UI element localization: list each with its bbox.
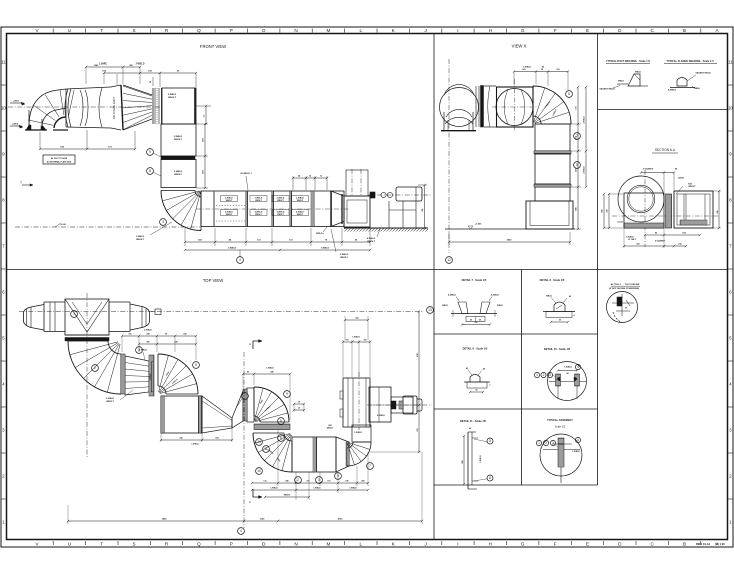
svg-text:P: P	[230, 28, 233, 33]
svg-text:1-WELD: 1-WELD	[572, 451, 580, 453]
svg-text:4: 4	[577, 438, 579, 442]
svg-text:5: 5	[576, 163, 578, 167]
svg-text:DETAIL 7 - Scale 1/5: DETAIL 7 - Scale 1/5	[462, 278, 487, 282]
svg-text:J: J	[424, 541, 426, 546]
svg-text:90: 90	[247, 372, 249, 374]
svg-text:10: 10	[257, 469, 261, 473]
svg-text:E: E	[586, 28, 589, 33]
svg-text:3: 3	[138, 348, 140, 352]
svg-text:+1.005: +1.005	[475, 224, 483, 226]
svg-text:GASKET WELD: GASKET WELD	[599, 88, 615, 91]
svg-text:980: 980	[576, 207, 578, 210]
svg-text:4: 4	[577, 365, 579, 369]
svg-text:640: 640	[356, 317, 359, 320]
svg-text:2-WELD: 2-WELD	[584, 116, 586, 124]
svg-text:WBOLT: WBOLT	[168, 97, 177, 99]
svg-text:840: 840	[270, 371, 273, 374]
svg-text:1-WELD: 1-WELD	[270, 488, 278, 490]
svg-text:WBOLT: WBOLT	[255, 200, 262, 202]
svg-text:750: 750	[417, 428, 419, 431]
svg-text:4: 4	[240, 529, 242, 533]
svg-text:1: 1	[538, 441, 540, 445]
svg-text:1-WELD: 1-WELD	[149, 373, 151, 381]
svg-text:1-WELD: 1-WELD	[313, 488, 321, 490]
svg-text:O: O	[262, 28, 266, 33]
svg-text:E: E	[586, 541, 589, 546]
svg-text:790: 790	[345, 481, 348, 483]
svg-text:2-WELD: 2-WELD	[174, 171, 183, 173]
svg-text:H: H	[489, 541, 492, 546]
svg-text:WBOLT: WBOLT	[688, 186, 696, 188]
svg-text:940: 940	[461, 460, 464, 463]
svg-text:WELD: WELD	[546, 296, 552, 298]
svg-text:Scale 1/5: Scale 1/5	[555, 426, 566, 429]
svg-text:100: 100	[556, 69, 559, 71]
svg-text:11: 11	[264, 447, 268, 451]
svg-text:DETAIL 9 - Scale 1/5: DETAIL 9 - Scale 1/5	[463, 347, 488, 351]
svg-text:AL TELL 1 → TN 21 DELINE: AL TELL 1 → TN 21 DELINE	[611, 283, 640, 286]
svg-text:WELD: WELD	[635, 72, 642, 74]
svg-text:1-WELD: 1-WELD	[480, 455, 482, 463]
svg-text:1-WELD: 1-WELD	[354, 432, 362, 434]
svg-text:WBOLT: WBOLT	[297, 214, 304, 216]
svg-text:WBOLT: WBOLT	[136, 239, 145, 241]
svg-text:7462: 7462	[162, 517, 168, 520]
svg-text:1250/1: 1250/1	[678, 178, 685, 180]
svg-text:7: 7	[369, 464, 371, 468]
svg-text:WELD+: WELD+	[316, 233, 324, 235]
svg-text:4767: 4767	[416, 353, 419, 357]
svg-text:TOP VIEW: TOP VIEW	[203, 278, 223, 283]
svg-text:I: I	[457, 28, 458, 33]
svg-text:2-WELD: 2-WELD	[136, 64, 145, 66]
svg-text:1: 1	[73, 312, 75, 316]
svg-text:3: 3	[162, 220, 164, 224]
svg-text:360: 360	[146, 342, 149, 344]
svg-text:240: 240	[179, 437, 182, 440]
svg-text:50: 50	[479, 319, 481, 321]
svg-text:WBOLT: WBOLT	[367, 241, 376, 243]
svg-text:A-WELD: A-WELD	[668, 89, 677, 92]
svg-text:50: 50	[475, 390, 477, 392]
svg-text:T: T	[100, 541, 103, 546]
svg-text:G: G	[521, 541, 525, 546]
svg-text:O: O	[262, 541, 266, 546]
svg-text:WELD: WELD	[497, 305, 503, 307]
svg-text:N: N	[294, 28, 297, 33]
svg-text:775: 775	[576, 106, 578, 109]
svg-text:L: L	[360, 541, 363, 546]
svg-text:8: 8	[280, 419, 282, 423]
svg-text:AL DUCT PLATE: AL DUCT PLATE	[51, 157, 68, 160]
svg-text:10A: 10A	[682, 232, 686, 235]
svg-text:13: 13	[428, 308, 432, 312]
svg-text:WELD: WELD	[442, 305, 448, 307]
svg-text:2-WELD: 2-WELD	[340, 254, 349, 256]
svg-text:G: G	[521, 28, 525, 33]
svg-text:150: 150	[346, 340, 349, 342]
svg-text:WBOLT: WBOLT	[277, 200, 284, 202]
svg-text:2-WELD: 2-WELD	[174, 136, 183, 138]
svg-text:940: 940	[601, 209, 604, 212]
svg-text:DETAIL 11 - Scale 1/5: DETAIL 11 - Scale 1/5	[460, 419, 487, 423]
svg-text:A: A	[249, 500, 251, 504]
svg-text:FRONT VIEW: FRONT VIEW	[200, 44, 226, 49]
svg-text:TYPICAL FLANGE WELDING - Scale: TYPICAL FLANGE WELDING - Scale 1:5	[666, 60, 714, 63]
svg-text:400: 400	[361, 480, 364, 483]
svg-text:L: L	[360, 28, 363, 33]
svg-text:2: 2	[543, 373, 545, 377]
svg-text:SECTION A-A: SECTION A-A	[655, 148, 676, 152]
svg-text:5: 5	[489, 439, 491, 443]
svg-text:1-WELD: 1-WELD	[352, 337, 360, 339]
svg-text:10: 10	[728, 106, 733, 111]
svg-text:M: M	[326, 541, 330, 546]
svg-text:+0.00: +0.00	[60, 224, 66, 226]
svg-text:10 10A T: 10 10A T	[628, 238, 637, 241]
svg-text:150: 150	[128, 334, 131, 336]
svg-text:1-WELD: 1-WELD	[564, 367, 572, 369]
svg-text:WBOLT: WBOLT	[226, 214, 233, 216]
svg-text:AL EXTERNAL PLATE SIZE: AL EXTERNAL PLATE SIZE	[47, 160, 72, 163]
svg-text:T: T	[100, 28, 103, 33]
svg-text:Q: Q	[197, 28, 201, 33]
svg-text:WELD: WELD	[618, 81, 625, 83]
svg-text:371: 371	[306, 481, 309, 483]
svg-text:11: 11	[1, 60, 6, 65]
svg-text:90: 90	[165, 334, 167, 336]
svg-text:(IF NOT SHOWN OTHERWISE): (IF NOT SHOWN OTHERWISE)	[609, 288, 639, 290]
svg-text:7: 7	[576, 134, 578, 138]
svg-text:I: I	[457, 541, 458, 546]
svg-text:5: 5	[337, 474, 339, 478]
svg-text:H: H	[489, 28, 492, 33]
svg-text:AIR INTAKE DUCT: AIR INTAKE DUCT	[112, 97, 116, 120]
svg-text:3: 3	[552, 441, 554, 445]
svg-text:T: T	[20, 181, 22, 185]
svg-text:A-WELD: A-WELD	[448, 294, 457, 297]
svg-text:2-WELD: 2-WELD	[144, 330, 152, 332]
svg-text:WBOLT: WBOLT	[284, 495, 292, 497]
svg-text:50: 50	[470, 319, 472, 321]
svg-text:1-WELD: 1-WELD	[228, 248, 237, 250]
svg-text:GASKET WELD: GASKET WELD	[695, 72, 711, 75]
svg-text:8: 8	[149, 169, 151, 173]
svg-text:6: 6	[489, 476, 491, 480]
svg-text:SC 1:20: SC 1:20	[715, 542, 725, 546]
svg-text:16: 16	[298, 408, 300, 410]
svg-text:P: P	[230, 541, 233, 546]
svg-text:6: 6	[280, 436, 282, 440]
svg-text:WBOLT: WBOLT	[277, 214, 284, 216]
svg-text:Q: Q	[197, 541, 201, 546]
svg-text:4752: 4752	[338, 517, 344, 520]
svg-text:d=1/4: d=1/4	[617, 221, 623, 224]
svg-text:WBOLT: WBOLT	[106, 401, 114, 403]
svg-text:9: 9	[149, 150, 151, 154]
svg-text:545: 545	[285, 480, 288, 483]
svg-text:DETAIL 8 - Scale 1/5: DETAIL 8 - Scale 1/5	[540, 278, 565, 282]
svg-text:10: 10	[1, 106, 6, 111]
svg-text:B: B	[683, 541, 686, 546]
svg-text:780: 780	[607, 209, 609, 212]
svg-text:12: 12	[447, 258, 451, 262]
svg-text:3: 3	[549, 373, 551, 377]
svg-text:131: 131	[263, 481, 266, 483]
svg-text:2: 2	[297, 478, 299, 482]
svg-text:2-WELD: 2-WELD	[106, 398, 114, 400]
svg-text:S: S	[133, 541, 136, 546]
svg-text:J: J	[424, 28, 426, 33]
svg-text:4-WELD: 4-WELD	[377, 414, 385, 417]
svg-text:DETAIL 10 - Scale 1/5: DETAIL 10 - Scale 1/5	[544, 347, 571, 351]
svg-text:TYPICAL ASSEMBLY: TYPICAL ASSEMBLY	[547, 418, 573, 422]
svg-text:1800: 1800	[507, 240, 513, 242]
svg-text:+WD2: +WD2	[12, 124, 19, 126]
svg-text:WBOLT: WBOLT	[174, 139, 183, 141]
svg-text:1: 1	[536, 373, 538, 377]
svg-text:3: 3	[318, 478, 320, 482]
svg-text:2-WELD: 2-WELD	[168, 94, 177, 96]
svg-text:1-WELD: 1-WELD	[321, 248, 330, 250]
svg-text:+WD1: +WD1	[13, 101, 20, 103]
svg-text:1.5HRC: 1.5HRC	[99, 64, 108, 66]
svg-text:WBOLT: WBOLT	[255, 214, 262, 216]
svg-text:1-WELD: 1-WELD	[136, 236, 145, 238]
svg-text:40: 40	[469, 427, 471, 430]
svg-text:1-WELD: 1-WELD	[266, 368, 274, 370]
svg-text:5 GASKET: 5 GASKET	[655, 240, 666, 243]
svg-text:WELD: WELD	[694, 88, 701, 90]
svg-text:DWG 10-A4: DWG 10-A4	[696, 542, 711, 546]
svg-text:640: 640	[183, 333, 186, 336]
svg-text:20-WELD 1: 20-WELD 1	[240, 173, 252, 175]
svg-text:F: F	[554, 28, 557, 33]
svg-text:4-WELD: 4-WELD	[367, 237, 376, 240]
svg-text:B: B	[683, 28, 686, 33]
svg-text:WBOLT: WBOLT	[226, 200, 233, 202]
svg-text:WBOLT: WBOLT	[340, 257, 349, 259]
svg-text:A: A	[249, 342, 251, 346]
svg-text:26: 26	[298, 402, 300, 404]
svg-text:2: 2	[94, 366, 96, 370]
svg-text:360: 360	[364, 340, 367, 342]
svg-text:S: S	[133, 28, 136, 33]
svg-text:7: 7	[244, 394, 246, 398]
svg-text:4: 4	[239, 258, 241, 262]
svg-text:1-WELD: 1-WELD	[139, 350, 147, 352]
svg-text:1150: 1150	[260, 518, 266, 520]
svg-text:WBOLT: WBOLT	[174, 174, 183, 176]
svg-text:F: F	[554, 541, 557, 546]
svg-text:5: 5	[195, 363, 197, 367]
svg-text:620: 620	[522, 69, 525, 71]
svg-text:M: M	[326, 28, 330, 33]
svg-text:9: 9	[286, 392, 288, 396]
svg-text:VIEW X: VIEW X	[512, 44, 527, 49]
svg-text:U: U	[68, 541, 71, 546]
svg-text:U: U	[68, 28, 71, 33]
svg-text:3 GASKET: 3 GASKET	[643, 168, 654, 171]
svg-text:10: 10	[257, 440, 261, 444]
svg-text:2-WELD: 2-WELD	[584, 166, 586, 174]
svg-text:6: 6	[568, 92, 570, 96]
svg-text:60: 60	[559, 320, 561, 322]
svg-text:N: N	[294, 541, 297, 546]
svg-text:A-WELD: A-WELD	[491, 294, 500, 297]
svg-text:TYPICAL DUCT WELDING - Scale 1: TYPICAL DUCT WELDING - Scale 1:5	[606, 60, 650, 63]
svg-text:1-WELD: 1-WELD	[191, 444, 199, 446]
svg-text:WBOLT: WBOLT	[297, 200, 304, 202]
svg-text:150: 150	[474, 322, 477, 324]
svg-text:11: 11	[728, 60, 733, 65]
svg-text:2: 2	[545, 441, 547, 445]
svg-text:1-WELD: 1-WELD	[349, 488, 357, 490]
svg-text:971: 971	[327, 481, 330, 483]
svg-text:WBOLT: WBOLT	[327, 428, 334, 430]
svg-text:240: 240	[146, 333, 149, 336]
